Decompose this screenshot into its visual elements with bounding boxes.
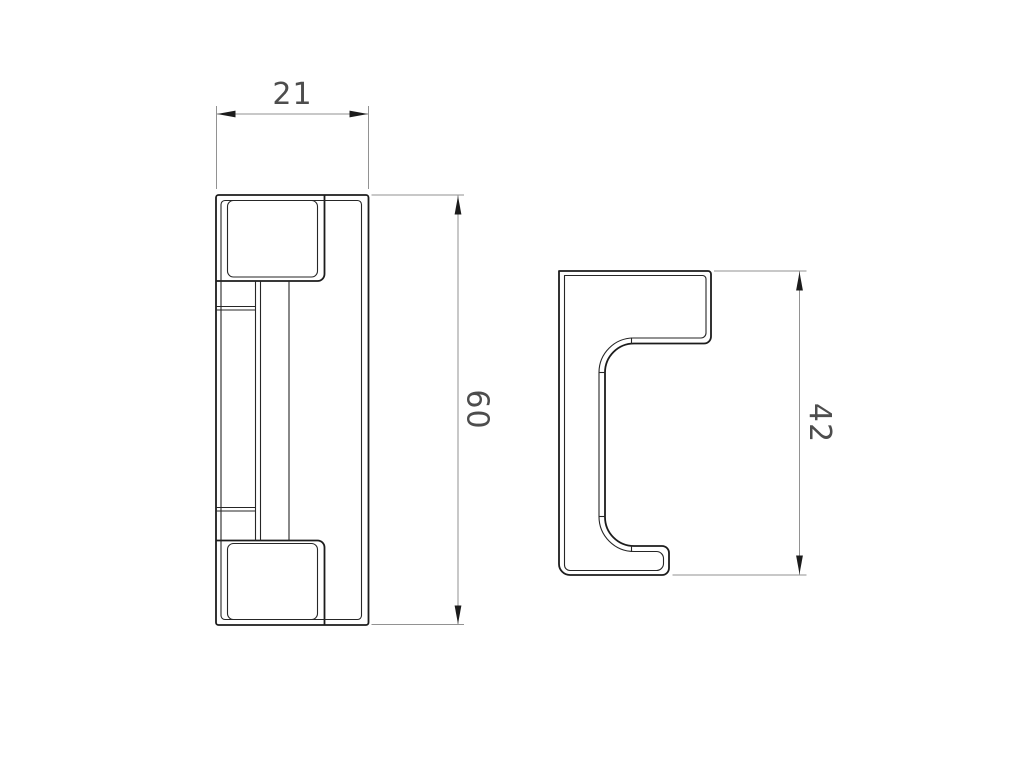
front-view-top-tab-outline (217, 196, 325, 281)
side-view (559, 271, 711, 575)
front-view (216, 195, 369, 625)
dimension-value-front-width: 21 (272, 77, 312, 112)
front-view-inner-edge (221, 201, 362, 620)
front-view-bottom-tab-inner-edge (228, 544, 318, 620)
front-view-top-tab-inner-edge (228, 201, 318, 278)
arrowhead-down-icon (796, 556, 803, 575)
arrowhead-right-icon (350, 111, 369, 118)
side-view-fillet-edges (565, 276, 707, 571)
dimension-front-width: 21 (217, 77, 369, 189)
arrowhead-up-icon (455, 196, 462, 215)
arrowhead-down-icon (455, 606, 462, 625)
dimension-front-height: 60 (372, 195, 495, 625)
arrowhead-up-icon (796, 272, 803, 291)
dimension-side-height: 42 (673, 271, 838, 575)
dimension-value-front-height: 60 (460, 389, 495, 429)
dimension-value-side-height: 42 (802, 403, 837, 443)
front-view-outline (216, 195, 369, 625)
arrowhead-left-icon (217, 111, 236, 118)
front-view-bottom-tab-outline (217, 541, 325, 625)
engineering-drawing-canvas: 21 60 42 (0, 0, 1024, 768)
front-view-fillet-edges (217, 201, 362, 620)
drawing-sheet: 21 60 42 (0, 0, 1024, 768)
side-view-outline (559, 271, 711, 575)
side-view-inner-edge (565, 276, 707, 571)
